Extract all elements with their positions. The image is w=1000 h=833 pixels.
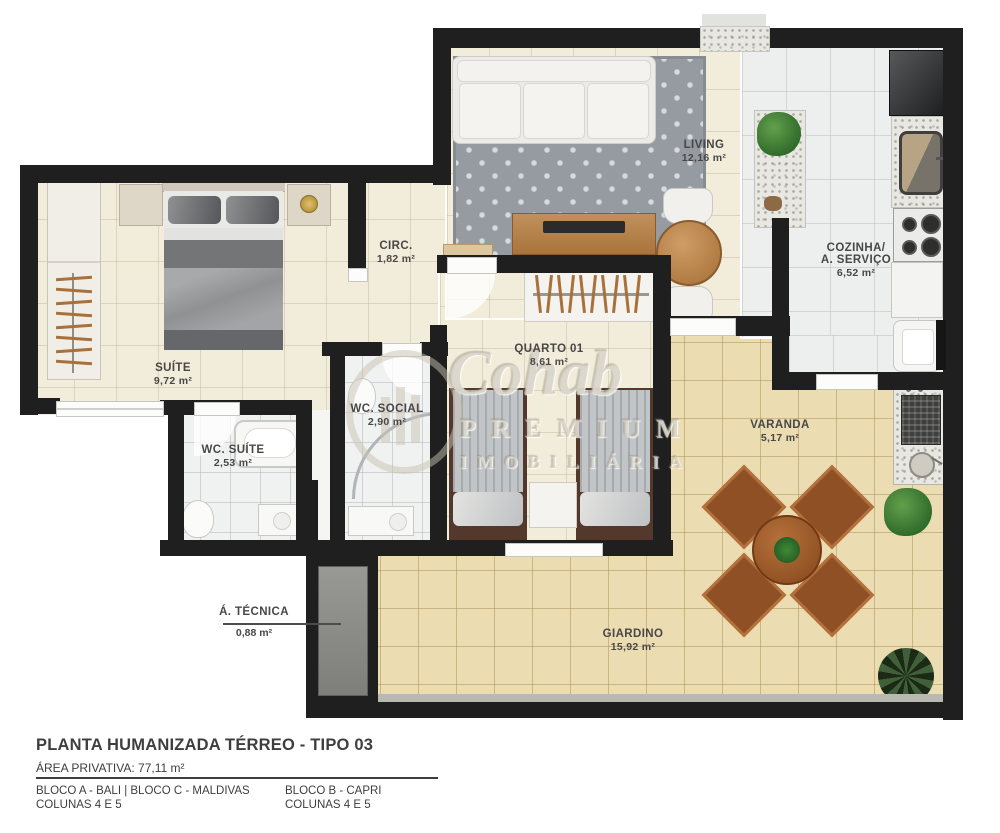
leader-line: [223, 623, 341, 625]
wall: [304, 480, 318, 540]
wardrobe: [47, 180, 101, 380]
entry-porch: [702, 14, 766, 26]
wall: [433, 28, 963, 48]
wall: [330, 342, 345, 552]
wardrobe-rack: [524, 266, 658, 322]
wall: [433, 28, 451, 185]
sofa: [452, 56, 656, 144]
pillow: [226, 196, 279, 224]
room-label-suite: SUÍTE 9,72 m²: [118, 362, 228, 387]
room-name: WC. SUÍTE: [178, 444, 288, 456]
tv: [543, 221, 625, 233]
door-living-varanda: [670, 318, 736, 336]
block-line: COLUNAS 4 E 5: [285, 798, 382, 812]
outdoor-table: [752, 515, 822, 585]
tank-basin: [902, 329, 934, 365]
blanket: [164, 268, 283, 330]
room-area: 12,16 m²: [649, 152, 759, 164]
room-name: GIARDINO: [578, 628, 688, 640]
nightstand: [119, 184, 163, 226]
hanger-icon: [56, 312, 92, 318]
door-suite-circ: [348, 268, 368, 282]
room-area: 0,88 m²: [204, 627, 304, 639]
hanger-icon: [56, 300, 92, 306]
sofa-cushion: [523, 83, 585, 139]
laundry-tank: [893, 320, 941, 372]
burner-icon: [902, 217, 917, 232]
hanger-icon: [56, 324, 92, 330]
hanger-icon: [56, 336, 92, 342]
block-line: BLOCO B - CAPRI: [285, 784, 382, 798]
room-name: LIVING: [649, 139, 759, 151]
wall: [20, 398, 60, 414]
block-info-left: BLOCO A - BALI | BLOCO C - MALDIVAS COLU…: [36, 784, 250, 812]
door-wc-suite: [194, 402, 240, 416]
wall: [306, 702, 963, 718]
dining-chair: [663, 188, 713, 224]
sheet-fold: [164, 228, 283, 240]
hanger-icon: [56, 360, 92, 366]
wall: [772, 218, 789, 380]
lamp-icon: [300, 195, 318, 213]
window-mullion: [57, 408, 163, 410]
wall: [168, 400, 184, 550]
wardrobe-shelf-line: [48, 261, 100, 263]
watermark-line2: IMOBILIÁRIA: [460, 452, 692, 473]
block-info-right: BLOCO B - CAPRI COLUNAS 4 E 5: [285, 784, 382, 812]
double-bed: [162, 180, 285, 352]
room-label-living: LIVING 12,16 m²: [649, 139, 759, 164]
hanger-icon: [56, 276, 92, 282]
blanket-foot: [164, 330, 283, 350]
room-name: A. SERVIÇO: [801, 254, 911, 266]
room-label-a-tecnica: Á. TÉCNICA 0,88 m²: [204, 604, 354, 644]
block-line: BLOCO A - BALI | BLOCO C - MALDIVAS: [36, 784, 250, 798]
room-label-cozinha: COZINHA/ A. SERVIÇO 6,52 m²: [801, 242, 911, 279]
burner-icon: [921, 214, 941, 234]
room-area: 6,52 m²: [801, 267, 911, 279]
private-area-text: ÁREA PRIVATIVA: 77,11 m²: [36, 761, 185, 775]
sofa-cushion: [587, 83, 649, 139]
wall: [20, 165, 447, 183]
divider-line: [36, 777, 438, 779]
door-cozinha-varanda: [816, 374, 878, 390]
entry-threshold: [700, 26, 770, 52]
door-quarto-giardino: [505, 543, 603, 557]
island-bowl: [764, 196, 782, 211]
room-label-quarto01: QUARTO 01 8,61 m²: [494, 343, 604, 368]
tv-stand: [512, 213, 656, 255]
room-name: VARANDA: [725, 419, 835, 431]
wall: [653, 255, 671, 555]
bedside-table: [529, 482, 577, 528]
room-area: 8,61 m²: [494, 356, 604, 368]
pillow: [453, 492, 523, 526]
room-label-circ: CIRC. 1,82 m²: [341, 240, 451, 265]
sofa-backrest: [457, 60, 651, 82]
window-suite: [56, 401, 164, 417]
room-name: CIRC.: [341, 240, 451, 252]
room-area: 2,53 m²: [178, 457, 288, 469]
room-area: 9,72 m²: [118, 375, 228, 387]
table-plant: [774, 537, 800, 563]
wall: [20, 165, 38, 415]
hanger-icon: [56, 348, 92, 354]
room-label-varanda: VARANDA 5,17 m²: [725, 419, 835, 444]
sofa-cushion: [459, 83, 521, 139]
blanket: [164, 240, 283, 268]
hanger-icon: [56, 288, 92, 294]
grill-grate: [901, 395, 941, 445]
page-title: PLANTA HUMANIZADA TÉRREO - TIPO 03: [36, 736, 373, 755]
room-area: 2,90 m²: [332, 416, 442, 428]
fridge: [889, 50, 945, 116]
room-name: COZINHA/: [801, 242, 911, 254]
door-quarto01: [447, 257, 497, 274]
burner-icon: [921, 237, 941, 257]
room-area: 1,82 m²: [341, 253, 451, 265]
wall: [322, 342, 382, 356]
room-label-wc-social: WC. SOCIAL 2,90 m²: [332, 403, 442, 428]
vanity: [348, 506, 414, 536]
room-name: WC. SOCIAL: [332, 403, 442, 415]
kitchen-sink: [899, 131, 943, 195]
washbasin-icon: [273, 512, 291, 530]
nightstand: [287, 184, 331, 226]
room-name: SUÍTE: [118, 362, 228, 374]
grill-station: [893, 383, 947, 485]
sink-round: [909, 452, 935, 478]
room-label-giardino: GIARDINO 15,92 m²: [578, 628, 688, 653]
room-area: 15,92 m²: [578, 641, 688, 653]
block-line: COLUNAS 4 E 5: [36, 798, 250, 812]
room-area: 5,17 m²: [725, 432, 835, 444]
wall-niche: [936, 320, 946, 370]
room-label-wc-suite: WC. SUÍTE 2,53 m²: [178, 444, 288, 469]
watermark-line1: PREMIUM: [460, 414, 695, 444]
toilet: [182, 500, 214, 538]
room-name: QUARTO 01: [494, 343, 604, 355]
room-name: Á. TÉCNICA: [204, 606, 304, 618]
pillow: [580, 492, 650, 526]
sink-counter: [891, 116, 945, 208]
washbasin-icon: [389, 513, 407, 531]
pillow: [168, 196, 221, 224]
